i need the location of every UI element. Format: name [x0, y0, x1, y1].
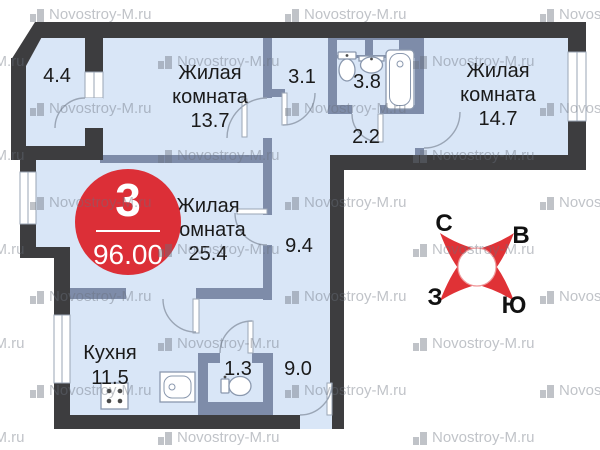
- kitchen-sink-icon: [160, 372, 195, 402]
- label-kitchen-area: 11.5: [91, 367, 128, 389]
- badge-rooms-count: 3: [115, 174, 141, 226]
- label-hall-middle-area: 9.4: [285, 235, 313, 257]
- compass-south: Ю: [502, 292, 527, 319]
- label-balcony-area: 4.4: [43, 65, 71, 87]
- compass-west: З: [427, 284, 442, 311]
- badge-total-area: 96.00: [93, 239, 163, 270]
- label-living-top-2: комната: [172, 86, 249, 108]
- floor-plan-svg: 4.4 Жилая комната 13.7 3.1 3.8 2.2 Жилая…: [0, 0, 600, 450]
- label-living-top-1: Жилая: [178, 62, 241, 84]
- label-wc-area: 1.3: [224, 358, 252, 380]
- label-bathroom-area: 3.8: [353, 71, 381, 93]
- label-living-right-2: комната: [460, 84, 537, 106]
- compass-north: С: [435, 210, 452, 237]
- label-living-main-2: комната: [170, 219, 247, 241]
- label-kitchen-name: Кухня: [83, 342, 137, 364]
- rooms-area-badge: 3 96.00: [75, 169, 181, 275]
- compass-icon: С В З Ю: [427, 210, 529, 319]
- label-living-top-area: 13.7: [191, 110, 230, 132]
- compass-east: В: [512, 222, 529, 249]
- label-living-right-1: Жилая: [466, 60, 529, 82]
- bathtub-icon: [386, 50, 414, 109]
- label-living-right-area: 14.7: [479, 108, 518, 130]
- label-hall-top-area: 3.1: [288, 66, 316, 88]
- label-living-main-1: Жилая: [176, 195, 239, 217]
- label-corridor-area: 2.2: [352, 126, 380, 148]
- floorplan-image: 4.4 Жилая комната 13.7 3.1 3.8 2.2 Жилая…: [0, 0, 600, 450]
- label-hall-entry-area: 9.0: [284, 358, 312, 380]
- label-living-main-area: 25.4: [189, 243, 228, 265]
